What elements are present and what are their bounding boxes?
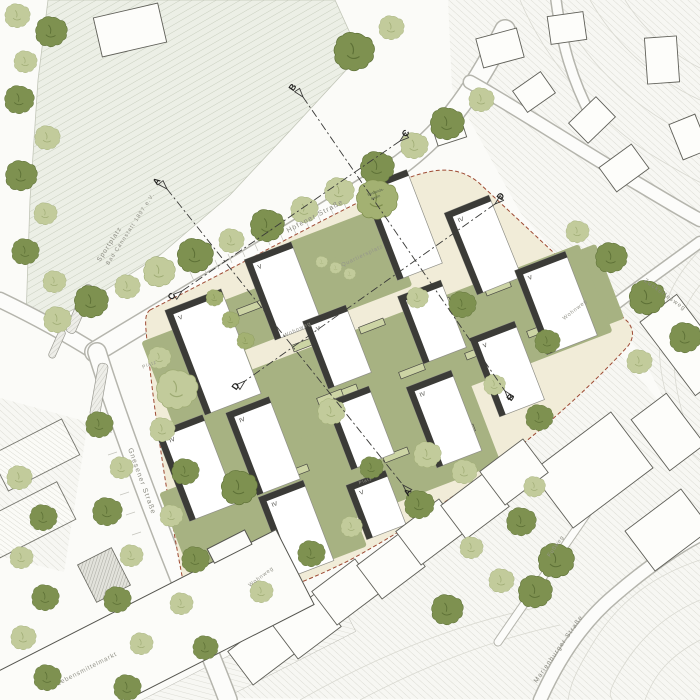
- site-plan-map: V V IV IV V V IV V IV IV: [0, 0, 700, 700]
- tree-icon: [670, 323, 700, 353]
- site-plan-svg: V V IV IV V V IV V IV IV: [0, 0, 700, 700]
